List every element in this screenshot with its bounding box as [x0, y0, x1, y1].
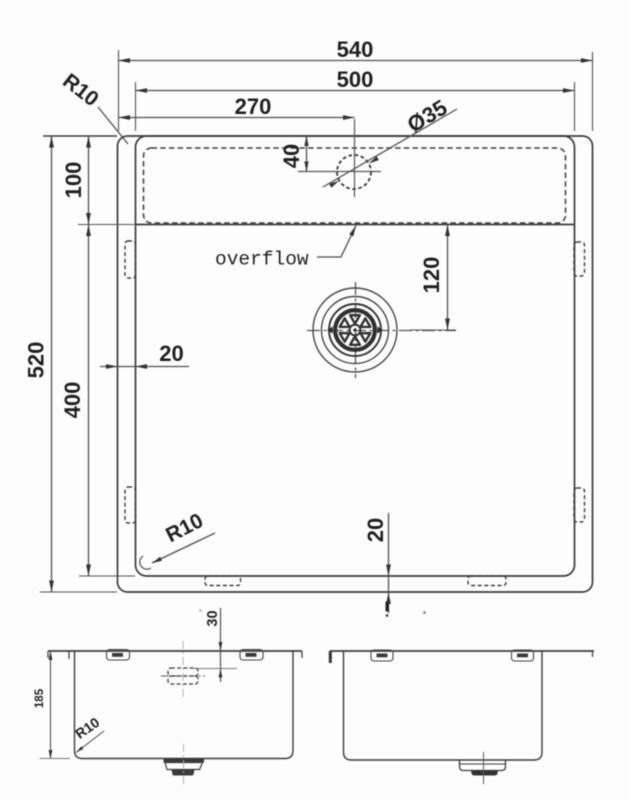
svg-text:500: 500	[337, 67, 374, 92]
svg-text:20: 20	[159, 341, 183, 366]
svg-text:100: 100	[61, 162, 86, 199]
svg-text:overflow: overflow	[215, 249, 309, 271]
svg-text:540: 540	[337, 37, 374, 62]
svg-text:270: 270	[235, 94, 272, 119]
svg-text:185: 185	[34, 688, 46, 708]
svg-text:520: 520	[23, 342, 48, 379]
svg-text:20: 20	[363, 518, 388, 542]
svg-text:30: 30	[205, 610, 221, 626]
svg-text:400: 400	[60, 382, 85, 419]
svg-text:40: 40	[279, 144, 304, 168]
svg-text:120: 120	[419, 257, 444, 294]
